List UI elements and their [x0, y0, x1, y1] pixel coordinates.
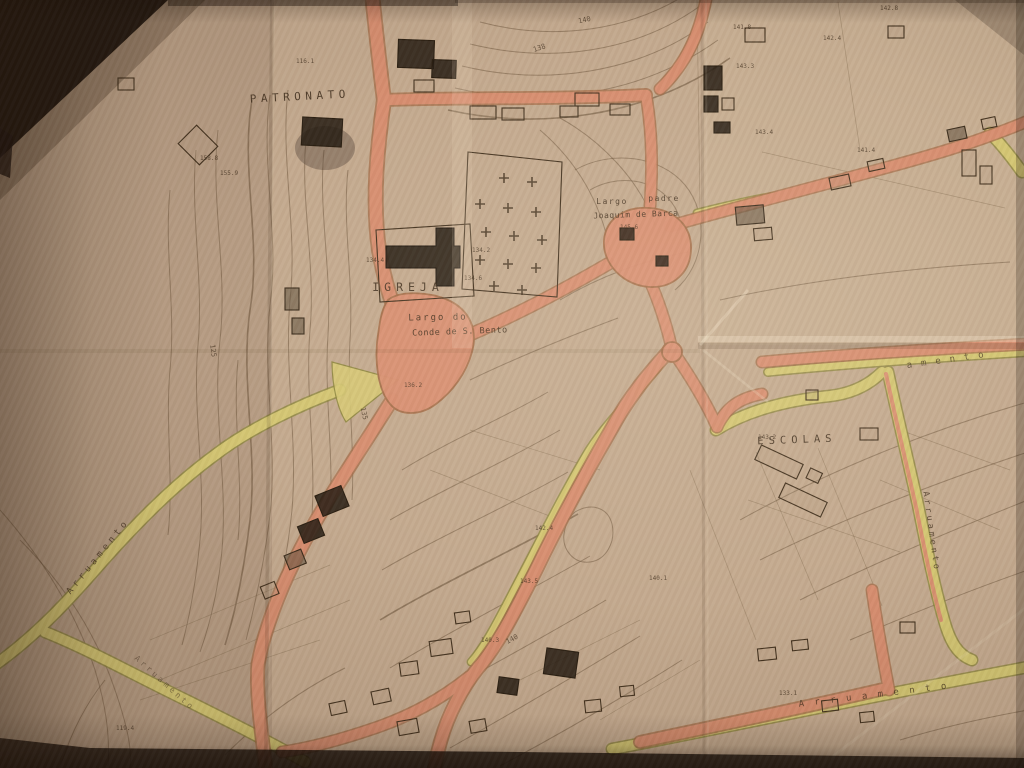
spot-height-label: 142.4	[823, 35, 841, 42]
spot-height-label: 140.1	[649, 575, 667, 582]
map-svg: PATRONATOIGREJALargo doConde de S. Bento…	[0, 0, 1024, 768]
spot-height-label: 143.4	[755, 129, 773, 136]
spot-height-label: 140.3	[481, 637, 499, 644]
spot-height-label: 142.4	[535, 525, 553, 532]
label-largo-padre-word2: padre	[648, 194, 680, 203]
spot-height-label: 143.5	[520, 578, 538, 585]
spot-height-label: 133.1	[779, 690, 797, 697]
spot-height-label: 134.4	[366, 257, 384, 264]
spot-height-label: 155.9	[220, 170, 238, 177]
spot-height-label: 141.4	[857, 147, 875, 154]
spot-height-label: 158.8	[200, 155, 218, 162]
spot-height-label: 145.6	[620, 224, 638, 231]
spot-height-label: 143.2	[758, 434, 776, 441]
spot-height-label: 134.2	[472, 247, 490, 254]
map-photo: PATRONATOIGREJALargo doConde de S. Bento…	[0, 0, 1024, 768]
spot-height-label: 119.4	[116, 725, 134, 732]
spot-height-label: 143.3	[736, 63, 754, 70]
label-largo-padre-word1: Largo	[596, 197, 628, 206]
spot-height-label: 116.1	[296, 58, 314, 65]
spot-height-label: 142.8	[880, 5, 898, 12]
label-igreja: IGREJA	[372, 280, 444, 294]
spot-height-label: 141.8	[733, 24, 751, 31]
spot-height-label: 136.2	[404, 382, 422, 389]
